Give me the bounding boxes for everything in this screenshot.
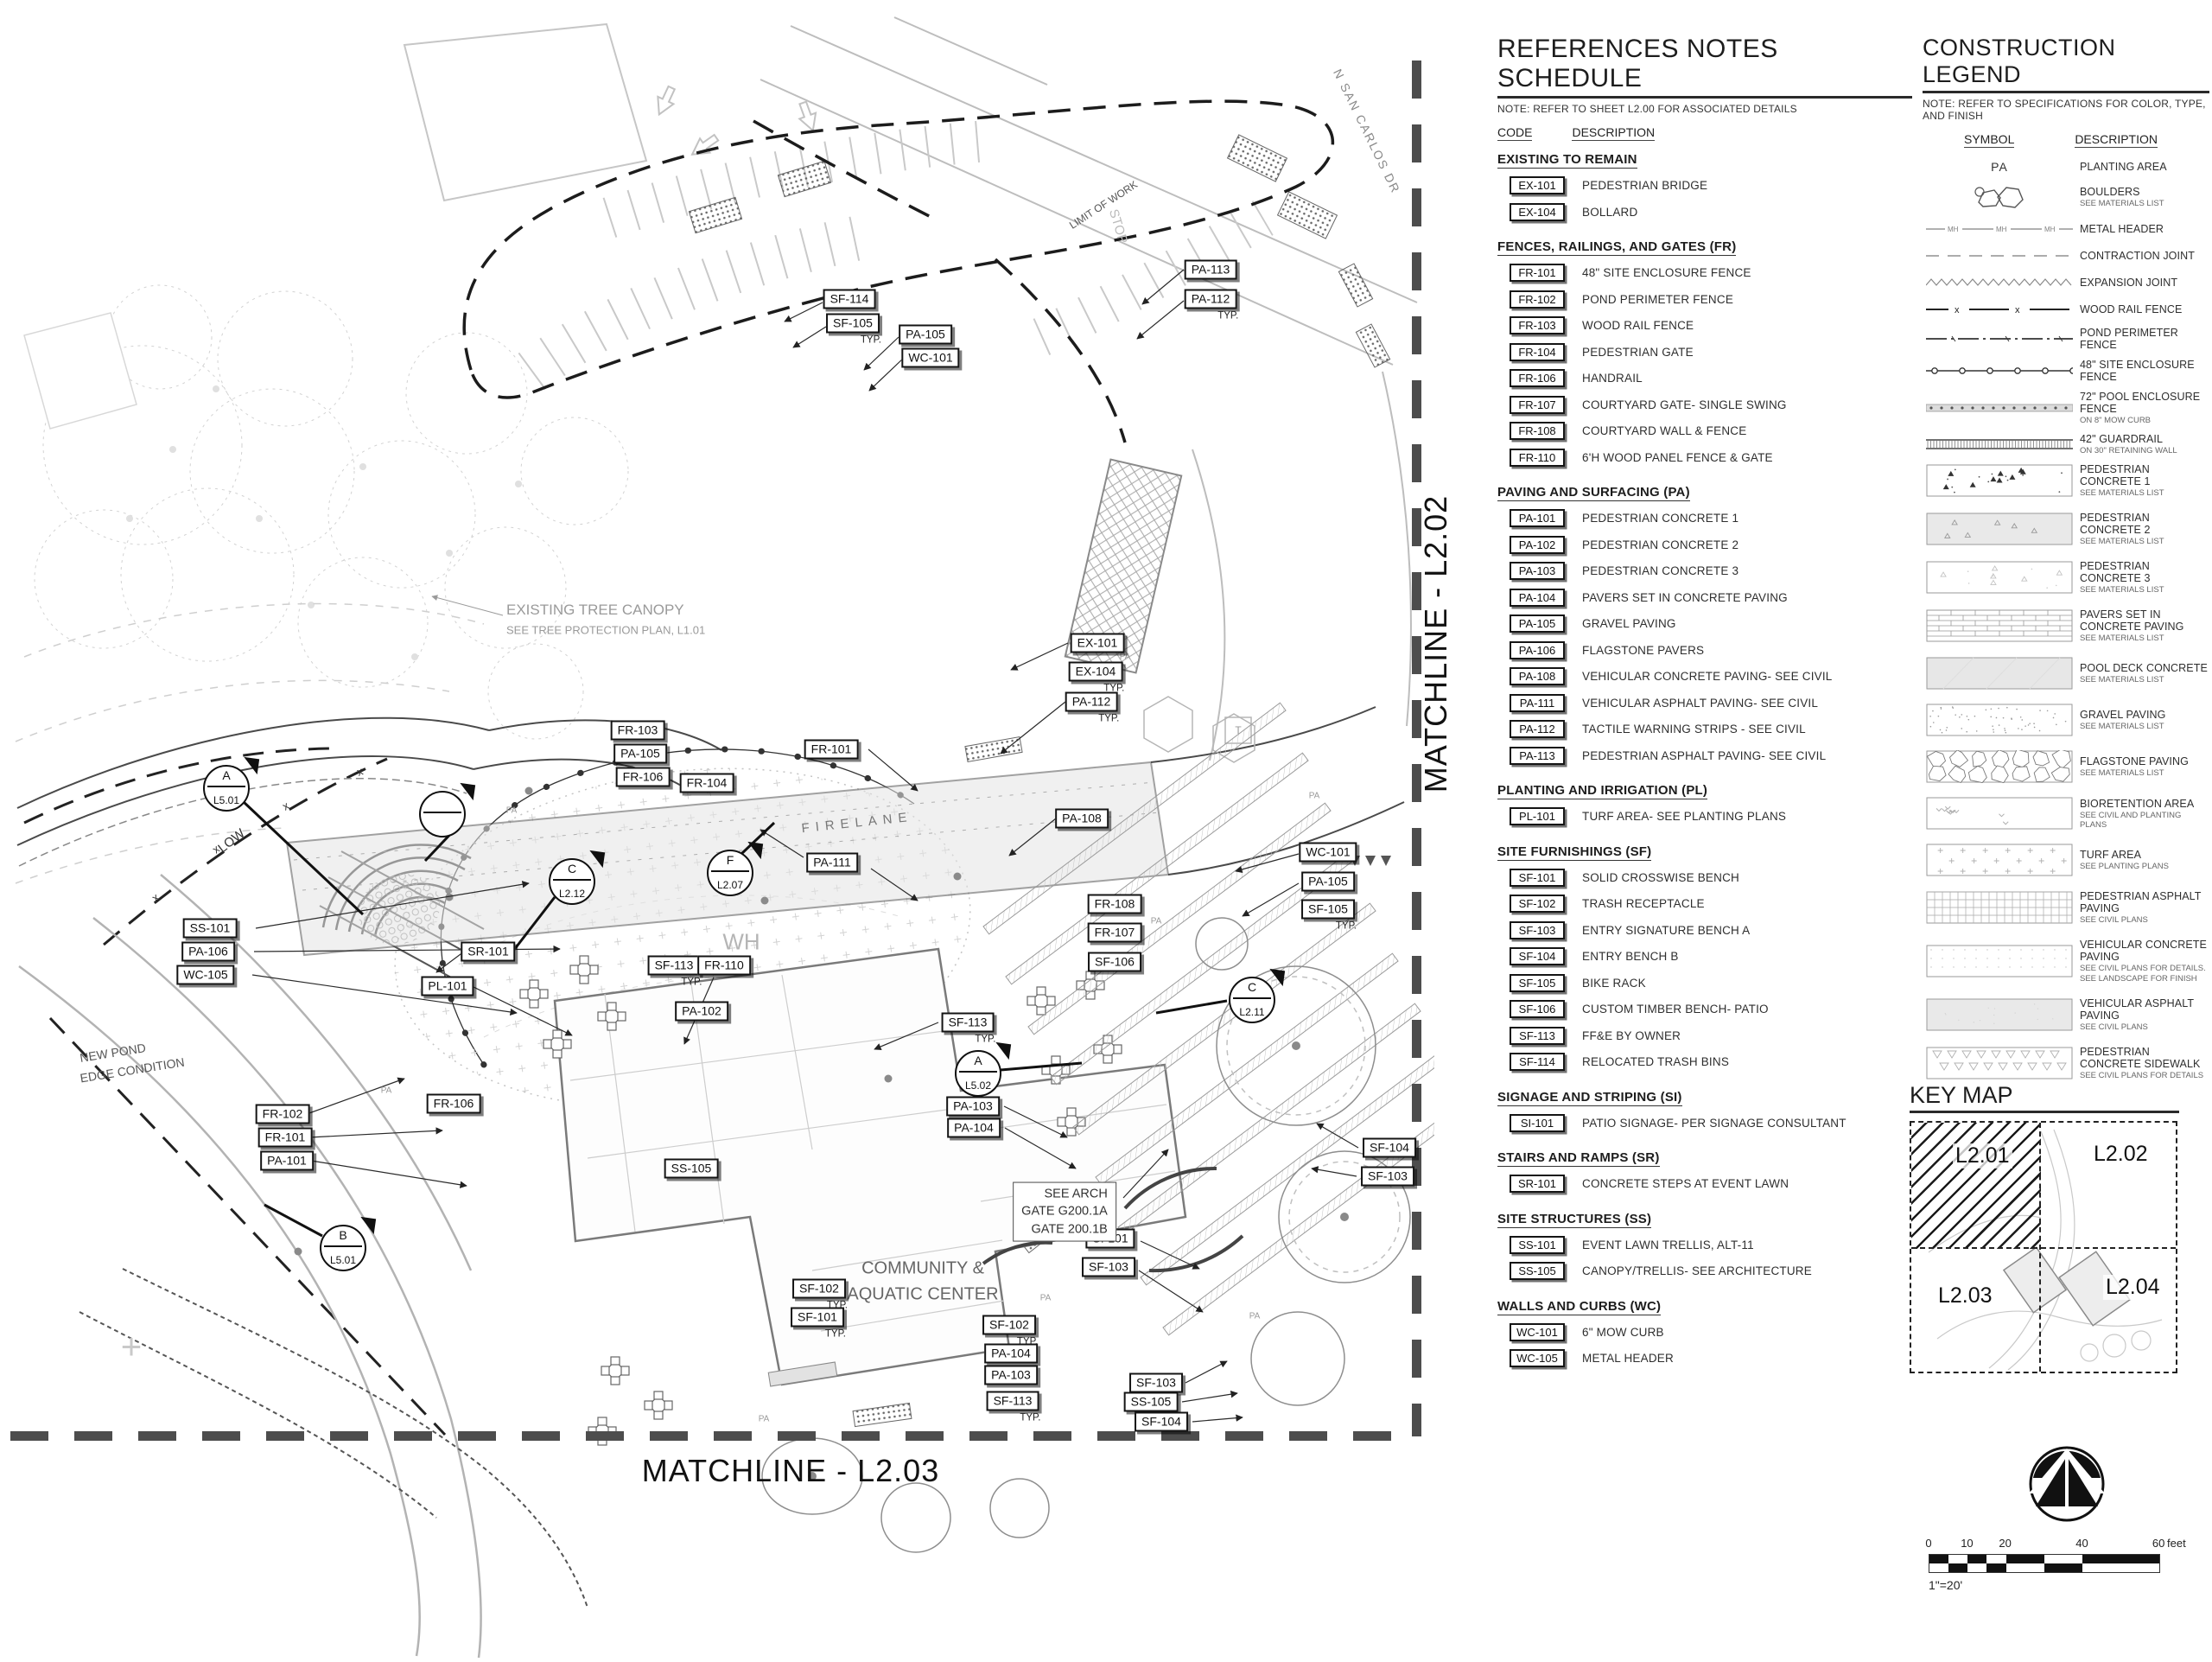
legend-symbol-pooldeck	[1923, 657, 2076, 690]
ref-description: 6'H WOOD PANEL FENCE & GATE	[1582, 451, 1773, 464]
detail-callout: AL5.01	[203, 765, 250, 812]
ref-description: TACTILE WARNING STRIPS - SEE CIVIL	[1582, 723, 1806, 735]
legend-subnote: ON 30" RETAINING WALL	[2080, 446, 2177, 455]
ref-row: EX-104BOLLARD	[1510, 202, 1912, 222]
refs-title: REFERENCES NOTES SCHEDULE	[1497, 35, 1912, 99]
legend-symbol-gravel	[1923, 704, 2076, 736]
ref-label-chip: PA-111	[806, 853, 858, 873]
legend-text: BIORETENTION AREASEE CIVIL AND PLANTING …	[2076, 798, 2209, 830]
keymap-quadrant-label: L2.03	[1935, 1283, 1995, 1309]
legend-symbol-flagstone	[1923, 750, 2076, 783]
legend-text: POND PERIMETER FENCE	[2076, 327, 2209, 351]
ref-section-heading: SITE FURNISHINGS (SF)	[1497, 844, 1651, 861]
ref-row: SF-104ENTRY BENCH B	[1510, 946, 1912, 966]
ref-description: PAVERS SET IN CONCRETE PAVING	[1582, 591, 1788, 604]
matchline-l202-label: MATCHLINE - L2.02	[1418, 495, 1454, 793]
ref-description: COURTYARD WALL & FENCE	[1582, 424, 1746, 437]
legend-text: PEDESTRIAN CONCRETE SIDEWALKSEE CIVIL PL…	[2076, 1046, 2209, 1080]
ref-code-chip: FR-101	[1510, 264, 1565, 282]
ref-label-chip: SF-113TYP.	[942, 1013, 995, 1033]
legend-text: PEDESTRIAN ASPHALT PAVINGSEE CIVIL PLANS	[2076, 890, 2209, 925]
ref-code-chip: PA-112	[1510, 720, 1565, 738]
refs-col-description: DESCRIPTION	[1572, 125, 1655, 141]
ref-label-chip: SF-113TYP.	[648, 956, 701, 976]
detail-callout-sheet: L5.01	[321, 1254, 365, 1266]
ref-label-chip: PA-106	[181, 942, 235, 962]
ref-label-chip: WC-101	[901, 348, 959, 368]
legend-text: 72" POOL ENCLOSURE FENCEON 8" MOW CURB	[2076, 391, 2209, 425]
legend-text: WOOD RAIL FENCE	[2076, 303, 2182, 315]
ref-section-heading: STAIRS AND RAMPS (SR)	[1497, 1150, 1660, 1167]
legend-row: xxWOOD RAIL FENCE	[1923, 300, 2209, 319]
ref-row: SF-103ENTRY SIGNATURE BENCH A	[1510, 920, 1912, 940]
plan-annotation-text: WH	[722, 929, 760, 956]
ref-description: TURF AREA- SEE PLANTING PLANS	[1582, 810, 1786, 823]
legend-subnote: SEE MATERIALS LIST	[2080, 768, 2189, 778]
ref-code-chip: FR-104	[1510, 343, 1565, 361]
ref-section-heading: SITE STRUCTURES (SS)	[1497, 1212, 1651, 1228]
legend-symbol-bioretention	[1923, 797, 2076, 830]
ref-code-chip: PA-104	[1510, 589, 1565, 607]
plan-annotation-text: PA	[1151, 917, 1162, 927]
ref-description: 6" MOW CURB	[1582, 1326, 1664, 1339]
legend-symbol-sidewalk	[1923, 1047, 2076, 1079]
detail-callout: CL2.12	[549, 858, 595, 905]
legend-row: BIORETENTION AREASEE CIVIL AND PLANTING …	[1923, 797, 2209, 830]
legend-description: 48" SITE ENCLOSURE FENCE	[2080, 359, 2209, 383]
detail-callout-letter: A	[957, 1054, 1000, 1067]
ref-row: SF-101SOLID CROSSWISE BENCH	[1510, 868, 1912, 888]
legend-text: POOL DECK CONCRETESEE MATERIALS LIST	[2076, 662, 2208, 685]
legend-symbol-turf	[1923, 844, 2076, 876]
legend-description: PLANTING AREA	[2080, 161, 2167, 173]
ref-code-chip: PA-113	[1510, 747, 1565, 765]
legend-description: PAVERS SET IN CONCRETE PAVING	[2080, 608, 2209, 633]
legend-description: VEHICULAR ASPHALT PAVING	[2080, 997, 2209, 1022]
ref-label-chip: SF-101TYP.	[791, 1308, 844, 1328]
plan-annotation-text: PA	[506, 806, 518, 816]
ref-code-chip: SF-102	[1510, 895, 1565, 913]
ref-description: CUSTOM TIMBER BENCH- PATIO	[1582, 1003, 1769, 1016]
building-footprint	[555, 949, 1185, 1385]
legend-symbol-expansion	[1923, 273, 2076, 292]
plan-annotation-text: COMMUNITY &	[861, 1259, 984, 1279]
legend-symbol-veh-conc	[1923, 945, 2076, 977]
scale-tick-label: 20	[1999, 1537, 2011, 1550]
ref-label-chip: PA-112TYP.	[1065, 692, 1118, 712]
ref-label-chip: SF-102TYP.	[982, 1315, 1036, 1335]
ref-row: SF-105BIKE RACK	[1510, 973, 1912, 993]
ref-description: RELOCATED TRASH BINS	[1582, 1055, 1729, 1068]
legend-row: 42" GUARDRAILON 30" RETAINING WALL	[1923, 433, 2209, 455]
ref-section: STAIRS AND RAMPS (SR)SR-101CONCRETE STEP…	[1497, 1139, 1912, 1194]
ref-code-chip: SF-103	[1510, 921, 1565, 939]
legend-subnote: SEE CIVIL PLANS FOR DETAILS.	[2080, 964, 2209, 973]
legend-description: FLAGSTONE PAVING	[2080, 755, 2189, 767]
ref-description: GRAVEL PAVING	[1582, 617, 1676, 630]
legend-symbol-conc2	[1923, 513, 2076, 545]
keymap-quadrant-label: L2.04	[2103, 1275, 2163, 1300]
scale-bar-labels: 010204060feet	[1929, 1537, 2188, 1551]
ref-description: BOLLARD	[1582, 206, 1637, 219]
ref-label-chip: SF-103	[1082, 1258, 1135, 1277]
ref-description: PEDESTRIAN CONCRETE 2	[1582, 538, 1738, 551]
legend-text: CONTRACTION JOINT	[2076, 250, 2195, 262]
legend-row: PEDESTRIAN ASPHALT PAVINGSEE CIVIL PLANS	[1923, 890, 2209, 925]
ref-row: SF-106CUSTOM TIMBER BENCH- PATIO	[1510, 999, 1912, 1019]
scale-bar: 010204060feet 1"=20'	[1929, 1537, 2188, 1592]
legend-symbol-veh-asphalt	[1923, 998, 2076, 1031]
plan-annotation-text: PA	[759, 1415, 770, 1424]
plan-annotation-text: AQUATIC CENTER	[847, 1285, 998, 1305]
ref-row: SS-101EVENT LAWN TRELLIS, ALT-11	[1510, 1235, 1912, 1255]
refs-col-code: CODE	[1497, 125, 1532, 141]
scale-unit-label: feet	[2167, 1537, 2186, 1550]
ref-code-chip: SS-105	[1510, 1262, 1565, 1280]
legend-col-symbol: SYMBOL	[1964, 132, 2014, 148]
ref-label-typ: TYP.	[1336, 919, 1357, 935]
detail-callout-sheet: L2.12	[550, 888, 594, 900]
legend-col-description: DESCRIPTION	[2075, 132, 2158, 148]
ref-code-chip: SI-101	[1510, 1114, 1565, 1132]
legend-row: VEHICULAR CONCRETE PAVINGSEE CIVIL PLANS…	[1923, 939, 2209, 984]
ref-label-chip: PA-103	[946, 1097, 1000, 1117]
adjacent-structure-outline	[24, 313, 137, 429]
ref-label-typ: TYP.	[1098, 711, 1119, 728]
legend-symbol-pa: PA	[1923, 160, 2076, 174]
ref-label-chip: SF-102TYP.	[792, 1279, 846, 1299]
ref-code-chip: EX-101	[1510, 176, 1565, 194]
ref-label-chip: EX-104TYP.	[1069, 662, 1123, 682]
ref-label-chip: FR-103	[611, 721, 665, 741]
ref-label-typ: TYP.	[861, 333, 881, 349]
ref-label-chip: FR-110	[697, 956, 751, 976]
ref-row: SS-105CANOPY/TRELLIS- SEE ARCHITECTURE	[1510, 1261, 1912, 1281]
ref-section: SITE STRUCTURES (SS)SS-101EVENT LAWN TRE…	[1497, 1200, 1912, 1282]
ref-label-chip: SF-105TYP.	[826, 314, 880, 334]
ref-code-chip: FR-108	[1510, 422, 1565, 440]
legend-description: POOL DECK CONCRETE	[2080, 662, 2208, 674]
ref-label-typ: TYP.	[1217, 309, 1238, 325]
legend-text: PEDESTRIAN CONCRETE 1SEE MATERIALS LIST	[2076, 463, 2209, 498]
ref-description: SOLID CROSSWISE BENCH	[1582, 871, 1739, 884]
ref-label-chip: PA-112TYP.	[1185, 290, 1237, 309]
legend-description: BOULDERS	[2080, 186, 2164, 198]
ref-label-chip: PA-105	[613, 744, 667, 764]
ref-description: ENTRY SIGNATURE BENCH A	[1582, 924, 1750, 937]
ref-code-chip: SF-105	[1510, 974, 1565, 992]
ref-description: METAL HEADER	[1582, 1352, 1674, 1365]
ref-code-chip: SF-101	[1510, 869, 1565, 887]
legend-symbol-fence72	[1923, 398, 2076, 417]
legend-subnote: SEE MATERIALS LIST	[2080, 585, 2209, 595]
legend-text: VEHICULAR CONCRETE PAVINGSEE CIVIL PLANS…	[2076, 939, 2209, 984]
svg-text:x: x	[1955, 305, 1960, 315]
legend-row: VEHICULAR ASPHALT PAVINGSEE CIVIL PLANS	[1923, 997, 2209, 1032]
ref-label-chip: WC-105	[176, 965, 234, 985]
plan-annotation-text: PA	[1309, 792, 1320, 801]
legend-row: MHMHMHMETAL HEADER	[1923, 220, 2209, 239]
existing-tree-canopy	[35, 285, 628, 739]
ref-label-chip: FR-102	[256, 1105, 310, 1124]
legend-symbol-metal-header: MHMHMH	[1923, 220, 2076, 239]
ref-code-chip: FR-103	[1510, 316, 1565, 334]
construction-legend: CONSTRUCTION LEGEND NOTE: REFER TO SPECI…	[1923, 35, 2209, 1094]
detail-callout: FL2.07	[707, 850, 753, 896]
arch-gate-note-line: GATE G200.1A	[1021, 1203, 1108, 1220]
legend-row: 48" SITE ENCLOSURE FENCE	[1923, 359, 2209, 383]
ref-label-chip: SS-105	[1124, 1392, 1179, 1412]
ref-label-chip: PA-101	[260, 1151, 314, 1171]
detail-callout-letter: B	[321, 1228, 365, 1242]
legend-symbol-fence48	[1923, 361, 2076, 380]
keymap-title: KEY MAP	[1910, 1082, 2179, 1113]
detail-callout-letter: F	[709, 853, 752, 867]
detail-callout-sheet: L5.02	[957, 1079, 1000, 1092]
legend-row: FLAGSTONE PAVINGSEE MATERIALS LIST	[1923, 750, 2209, 783]
ref-label-typ: TYP.	[681, 975, 702, 991]
detail-callout-letter: C	[1230, 980, 1274, 994]
legend-text: TURF AREASEE PLANTING PLANS	[2076, 849, 2169, 871]
legend-text: 48" SITE ENCLOSURE FENCE	[2076, 359, 2209, 383]
refs-note: NOTE: REFER TO SHEET L2.00 FOR ASSOCIATE…	[1497, 103, 1912, 115]
ref-label-chip: SF-105TYP.	[1301, 900, 1355, 920]
legend-subnote: SEE CIVIL AND PLANTING PLANS	[2080, 811, 2209, 830]
ref-label-chip: SF-104	[1135, 1412, 1188, 1432]
ref-description: VEHICULAR CONCRETE PAVING- SEE CIVIL	[1582, 670, 1833, 683]
ref-section: EXISTING TO REMAINEX-101PEDESTRIAN BRIDG…	[1497, 141, 1912, 222]
ref-code-chip: SS-101	[1510, 1236, 1565, 1254]
legend-symbol-conc1	[1923, 464, 2076, 497]
ref-code-chip: PA-111	[1510, 694, 1565, 712]
legend-description: GRAVEL PAVING	[2080, 709, 2165, 721]
ref-row: PA-106FLAGSTONE PAVERS	[1510, 640, 1912, 660]
ref-section: FENCES, RAILINGS, AND GATES (FR)FR-10148…	[1497, 228, 1912, 468]
ref-section-heading: FENCES, RAILINGS, AND GATES (FR)	[1497, 239, 1736, 256]
plan-annotation-text: T	[1235, 724, 1241, 736]
ref-code-chip: PA-108	[1510, 667, 1565, 685]
legend-subnote: SEE MATERIALS LIST	[2080, 199, 2164, 208]
detail-callout-sheet: L5.01	[205, 794, 248, 806]
legend-text: BOULDERSSEE MATERIALS LIST	[2076, 186, 2164, 208]
ref-row: PA-105GRAVEL PAVING	[1510, 614, 1912, 634]
ref-row: FR-106HANDRAIL	[1510, 368, 1912, 388]
ref-label-chip: SF-103	[1129, 1373, 1183, 1393]
ref-section: PLANTING AND IRRIGATION (PL)PL-101TURF A…	[1497, 772, 1912, 826]
legend-description: PEDESTRIAN CONCRETE 2	[2080, 512, 2209, 536]
legend-description: 42" GUARDRAIL	[2080, 433, 2177, 445]
ref-label-chip: FR-108	[1088, 895, 1142, 914]
scale-tick-label: 60	[2152, 1537, 2164, 1550]
ref-row: PL-101TURF AREA- SEE PLANTING PLANS	[1510, 806, 1912, 826]
legend-subnote: SEE LANDSCAPE FOR FINISH	[2080, 974, 2209, 984]
arch-gate-note: SEE ARCHGATE G200.1AGATE 200.1B	[1013, 1182, 1116, 1242]
ref-description: PEDESTRIAN BRIDGE	[1582, 179, 1707, 192]
legend-subnote: SEE MATERIALS LIST	[2080, 722, 2165, 731]
ref-label-chip: FR-106	[616, 767, 671, 787]
site-plan: x x x x	[0, 0, 1434, 1662]
legend-text: PEDESTRIAN CONCRETE 2SEE MATERIALS LIST	[2076, 512, 2209, 546]
references-notes-schedule: REFERENCES NOTES SCHEDULE NOTE: REFER TO…	[1497, 35, 1912, 1375]
legend-subnote: ON 8" MOW CURB	[2080, 416, 2209, 425]
ref-description: BIKE RACK	[1582, 977, 1646, 990]
ref-description: PEDESTRIAN CONCRETE 3	[1582, 564, 1738, 577]
matchline-l203-line	[10, 1431, 1414, 1441]
svg-text:MH: MH	[1948, 226, 1959, 233]
legend-symbol-pond-fence	[1923, 329, 2076, 348]
ref-row: WC-105METAL HEADER	[1510, 1348, 1912, 1368]
legend-symbol-conc3	[1923, 561, 2076, 594]
legend-description: PEDESTRIAN CONCRETE 1	[2080, 463, 2209, 487]
ref-label-chip: PA-103	[984, 1366, 1038, 1385]
ref-code-chip: FR-102	[1510, 290, 1565, 309]
ref-section: PAVING AND SURFACING (PA)PA-101PEDESTRIA…	[1497, 474, 1912, 766]
ref-code-chip: SF-106	[1510, 1000, 1565, 1018]
drawing-sheet: x x x x	[0, 0, 2212, 1662]
matchline-l203-label: MATCHLINE - L2.03	[642, 1453, 939, 1489]
detail-callout-letter: A	[205, 768, 248, 782]
keymap-quadrant-label: L2.01	[1953, 1143, 2012, 1168]
legend-description: WOOD RAIL FENCE	[2080, 303, 2182, 315]
ref-description: TRASH RECEPTACLE	[1582, 897, 1705, 910]
ref-code-chip: FR-107	[1510, 396, 1565, 414]
ref-section: SITE FURNISHINGS (SF)SF-101SOLID CROSSWI…	[1497, 833, 1912, 1073]
north-arrow-icon	[2028, 1445, 2106, 1523]
ref-label-typ: TYP.	[975, 1032, 995, 1048]
legend-row: PAVERS SET IN CONCRETE PAVINGSEE MATERIA…	[1923, 608, 2209, 643]
legend-row: PEDESTRIAN CONCRETE 2SEE MATERIALS LIST	[1923, 512, 2209, 546]
ref-row: SF-102TRASH RECEPTACLE	[1510, 894, 1912, 914]
ref-description: CONCRETE STEPS AT EVENT LAWN	[1582, 1177, 1789, 1190]
legend-text: PLANTING AREA	[2076, 161, 2167, 173]
ref-section: WALLS AND CURBS (WC)WC-1016" MOW CURBWC-…	[1497, 1288, 1912, 1369]
canopy-note-leader	[432, 596, 503, 615]
legend-symbol-wood-rail: xx	[1923, 300, 2076, 319]
ref-label-chip: SF-106	[1088, 952, 1141, 972]
plan-annotation-text: PA	[1040, 1294, 1052, 1303]
ref-code-chip: FR-106	[1510, 369, 1565, 387]
ref-row: EX-101PEDESTRIAN BRIDGE	[1510, 175, 1912, 195]
ref-label-chip: WC-101	[1299, 843, 1357, 863]
ref-label-chip: PA-113	[1185, 260, 1237, 280]
ref-label-typ: TYP.	[825, 1327, 846, 1343]
detail-callout: AL5.02	[955, 1050, 1001, 1097]
ref-section-heading: EXISTING TO REMAIN	[1497, 152, 1637, 169]
ref-label-chip: PA-105	[1301, 872, 1355, 892]
ref-row: PA-101PEDESTRIAN CONCRETE 1	[1510, 508, 1912, 528]
keymap-divider-horizontal	[1911, 1247, 2176, 1249]
legend-description: PEDESTRIAN ASPHALT PAVING	[2080, 890, 2209, 914]
ref-label-chip: FR-101	[258, 1128, 313, 1148]
detail-callout: CL2.11	[1229, 977, 1275, 1023]
adjacent-building-outline	[404, 24, 646, 201]
legend-symbol-pavers	[1923, 609, 2076, 642]
ref-row: FR-107COURTYARD GATE- SINGLE SWING	[1510, 395, 1912, 415]
keymap-quadrant-label: L2.02	[2091, 1142, 2151, 1167]
ref-row: WC-1016" MOW CURB	[1510, 1322, 1912, 1342]
ref-row: PA-112TACTILE WARNING STRIPS - SEE CIVIL	[1510, 719, 1912, 739]
ref-section: SIGNAGE AND STRIPING (SI)SI-101PATIO SIG…	[1497, 1079, 1912, 1133]
legend-text: PEDESTRIAN CONCRETE 3SEE MATERIALS LIST	[2076, 560, 2209, 595]
ref-label-chip: FR-106	[427, 1094, 481, 1114]
ref-code-chip: SF-114	[1510, 1053, 1565, 1071]
keymap-current-sheet-hatch	[1911, 1123, 2041, 1249]
ref-row: SR-101CONCRETE STEPS AT EVENT LAWN	[1510, 1174, 1912, 1194]
legend-note: NOTE: REFER TO SPECIFICATIONS FOR COLOR,…	[1923, 98, 2209, 122]
legend-subnote: SEE MATERIALS LIST	[2080, 634, 2209, 643]
legend-subnote: SEE MATERIALS LIST	[2080, 537, 2209, 546]
ref-label-chip: SR-101	[461, 942, 515, 962]
legend-description: PEDESTRIAN CONCRETE SIDEWALK	[2080, 1046, 2209, 1070]
ref-description: CANOPY/TRELLIS- SEE ARCHITECTURE	[1582, 1264, 1812, 1277]
ref-row: SF-113FF&E BY OWNER	[1510, 1026, 1912, 1046]
legend-row: PEDESTRIAN CONCRETE SIDEWALKSEE CIVIL PL…	[1923, 1046, 2209, 1080]
ref-section-heading: PLANTING AND IRRIGATION (PL)	[1497, 783, 1707, 799]
ref-label-chip: EX-101	[1071, 634, 1125, 653]
scale-note: 1"=20'	[1929, 1578, 2188, 1592]
ref-row: PA-108VEHICULAR CONCRETE PAVING- SEE CIV…	[1510, 666, 1912, 686]
plan-annotation-text: EXISTING TREE CANOPY	[506, 602, 684, 619]
tree-dots	[126, 385, 522, 660]
ref-label-chip: PA-104	[947, 1118, 1001, 1138]
legend-text: PAVERS SET IN CONCRETE PAVINGSEE MATERIA…	[2076, 608, 2209, 643]
detail-callout-letter: C	[550, 862, 594, 876]
ref-code-chip: PA-103	[1510, 562, 1565, 580]
legend-subnote: SEE MATERIALS LIST	[2080, 488, 2209, 498]
plan-annotation-text: PA	[381, 1086, 392, 1096]
ref-section-heading: SIGNAGE AND STRIPING (SI)	[1497, 1090, 1682, 1106]
detail-callout	[419, 791, 466, 837]
ref-code-chip: PA-105	[1510, 614, 1565, 633]
legend-symbol-ped-asphalt	[1923, 891, 2076, 924]
legend-subnote: SEE CIVIL PLANS	[2080, 915, 2209, 925]
legend-row: PAPLANTING AREA	[1923, 160, 2209, 174]
legend-row: 72" POOL ENCLOSURE FENCEON 8" MOW CURB	[1923, 391, 2209, 425]
ref-row: SI-101PATIO SIGNAGE- PER SIGNAGE CONSULT…	[1510, 1113, 1912, 1133]
ref-description: COURTYARD GATE- SINGLE SWING	[1582, 398, 1787, 411]
legend-description: CONTRACTION JOINT	[2080, 250, 2195, 262]
ref-section-heading: PAVING AND SURFACING (PA)	[1497, 485, 1690, 501]
legend-text: 42" GUARDRAILON 30" RETAINING WALL	[2076, 433, 2177, 455]
ref-label-chip: SS-101	[183, 919, 238, 939]
legend-row: BOULDERSSEE MATERIALS LIST	[1923, 181, 2209, 213]
ref-code-chip: WC-101	[1510, 1323, 1565, 1341]
ref-row: PA-104PAVERS SET IN CONCRETE PAVING	[1510, 588, 1912, 608]
ref-row: FR-103WOOD RAIL FENCE	[1510, 315, 1912, 335]
ref-label-chip: SF-114	[823, 290, 876, 309]
plan-linework: x x x x	[0, 0, 1434, 1662]
legend-symbol-guardrail	[1923, 435, 2076, 454]
legend-row: PEDESTRIAN CONCRETE 1SEE MATERIALS LIST	[1923, 463, 2209, 498]
scale-bar-blocks	[1929, 1554, 2160, 1573]
arch-gate-note-line: SEE ARCH	[1021, 1186, 1108, 1203]
scale-tick-label: 10	[1961, 1537, 1973, 1550]
legend-description: EXPANSION JOINT	[2080, 277, 2177, 289]
ref-label-chip: PA-105	[899, 325, 952, 345]
detail-callout-sheet: L2.07	[709, 879, 752, 891]
legend-row: EXPANSION JOINT	[1923, 273, 2209, 292]
legend-row: CONTRACTION JOINT	[1923, 246, 2209, 265]
ref-row: PA-103PEDESTRIAN CONCRETE 3	[1510, 561, 1912, 581]
legend-row: PEDESTRIAN CONCRETE 3SEE MATERIALS LIST	[1923, 560, 2209, 595]
ref-row: SF-114RELOCATED TRASH BINS	[1510, 1052, 1912, 1072]
legend-symbol-boulders	[1923, 181, 2076, 213]
legend-description: PEDESTRIAN CONCRETE 3	[2080, 560, 2209, 584]
keymap-box: L2.01 L2.02 L2.03 L2.04	[1910, 1121, 2177, 1373]
ref-description: HANDRAIL	[1582, 372, 1643, 385]
legend-text: FLAGSTONE PAVINGSEE MATERIALS LIST	[2076, 755, 2189, 778]
legend-text: VEHICULAR ASPHALT PAVINGSEE CIVIL PLANS	[2076, 997, 2209, 1032]
